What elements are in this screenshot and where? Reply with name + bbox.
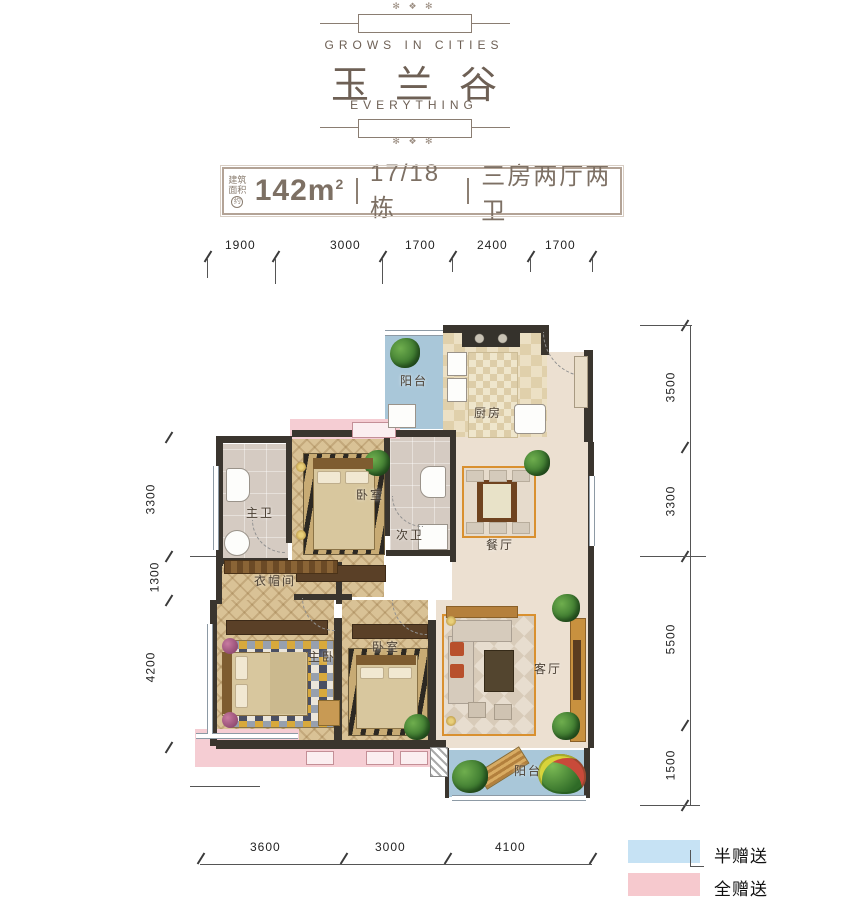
logo-rule-top-right	[468, 23, 510, 24]
dim-top-5: 1700	[545, 238, 576, 252]
room-label-bedroom-mid: 卧室	[356, 486, 384, 503]
flourish-bottom-icon: ✻ ❖ ✻	[354, 136, 474, 147]
pouf-icon	[222, 638, 238, 654]
dim-right-4: 1500	[663, 750, 677, 781]
plant-icon	[390, 338, 420, 368]
dimension-tick	[165, 594, 174, 606]
dim-left-3: 4200	[143, 652, 157, 683]
dimension-tick	[204, 250, 213, 262]
wall-segment	[386, 550, 456, 556]
fridge-icon	[514, 404, 546, 434]
info-divider	[356, 178, 358, 204]
dimension-line	[640, 325, 692, 326]
wall-segment	[216, 740, 446, 749]
dimension-tick	[340, 852, 349, 864]
dimension-tick	[681, 719, 690, 731]
dimension-line	[530, 258, 531, 272]
window-marker	[213, 466, 219, 550]
logo-rule-bottom-right	[468, 127, 510, 128]
dimension-tick	[165, 550, 174, 562]
nightstand-icon	[296, 530, 306, 540]
window-marker	[385, 330, 443, 336]
room-label-master-bath: 主卫	[246, 504, 274, 521]
logo-tagline-bottom: EVERYTHING	[264, 98, 564, 112]
dimension-line	[207, 258, 208, 278]
pillow	[360, 667, 384, 679]
dimension-tick	[589, 250, 598, 262]
logo-rule-bottom-left	[320, 127, 360, 128]
dimension-tick	[449, 250, 458, 262]
dim-bottom-2: 3000	[375, 840, 406, 854]
dining-chair	[489, 470, 507, 482]
dim-top-1: 1900	[225, 238, 256, 252]
area-prefix: 建筑 面积约	[224, 175, 251, 208]
info-divider	[467, 178, 469, 204]
dimension-line	[640, 805, 700, 806]
shoe-cabinet	[574, 356, 588, 408]
dimension-tick	[444, 852, 453, 864]
ac-unit-box	[366, 751, 394, 765]
sink-icon	[224, 530, 250, 556]
dimension-line	[275, 258, 276, 284]
nightstand-icon	[296, 462, 306, 472]
wall-segment	[216, 436, 292, 443]
dimension-tick	[527, 250, 536, 262]
toilet-icon	[420, 466, 446, 498]
window-marker	[452, 795, 586, 801]
bedroom-2-headboard	[356, 655, 416, 665]
dimension-tick	[165, 741, 174, 753]
dimension-line	[640, 556, 706, 557]
logo-rule-top-left	[320, 23, 360, 24]
room-label-second-bath: 次卫	[396, 526, 424, 543]
dim-top-3: 1700	[405, 238, 436, 252]
wall-segment	[450, 436, 456, 562]
kitchen-sink-icon	[447, 378, 467, 402]
room-label-cloakroom: 衣帽间	[254, 572, 296, 589]
tv-icon	[573, 640, 581, 700]
cushion	[450, 664, 464, 678]
bush-icon	[452, 760, 488, 793]
dining-chair	[512, 522, 530, 534]
coffee-table-icon	[484, 650, 514, 692]
master-headboard	[222, 652, 232, 714]
flourish-top-icon: ✻ ❖ ✻	[354, 1, 474, 12]
pillow	[345, 471, 369, 484]
armchair	[494, 704, 512, 720]
dim-bottom-3: 4100	[495, 840, 526, 854]
window-marker	[589, 476, 595, 546]
pillow	[235, 684, 248, 708]
wall-segment	[334, 618, 342, 746]
dimension-tick	[681, 441, 690, 453]
dining-chair	[489, 522, 507, 534]
room-label-living: 客厅	[534, 660, 562, 677]
logo-tagline-top: GROWS IN CITIES	[264, 38, 564, 52]
stove-icon	[462, 330, 520, 347]
dim-right-1: 3500	[663, 372, 677, 403]
dim-right-2: 3300	[663, 486, 677, 517]
dimension-tick	[165, 431, 174, 443]
plant-icon	[404, 714, 430, 740]
blanket	[270, 652, 306, 714]
lamp-icon	[446, 616, 456, 626]
dim-top-2: 3000	[330, 238, 361, 252]
dimension-line	[592, 258, 593, 272]
dim-left-1: 3300	[143, 484, 157, 515]
washing-machine-icon	[388, 404, 416, 428]
wall-segment	[216, 562, 222, 604]
dining-chair	[466, 470, 484, 482]
flowerbed-icon	[538, 754, 586, 794]
building-number: 17/18栋	[370, 160, 455, 223]
sofa-icon	[452, 620, 512, 642]
plant-icon	[524, 450, 550, 476]
room-label-bedroom-2: 卧室	[372, 638, 400, 655]
dim-bottom-1: 3600	[250, 840, 281, 854]
dimension-tick	[379, 250, 388, 262]
legend-label-full-gift: 全赠送	[714, 875, 768, 900]
flue-shaft	[430, 747, 448, 777]
dimension-line	[382, 258, 383, 284]
room-label-kitchen: 厨房	[474, 404, 502, 421]
dimension-line	[190, 786, 260, 787]
plant-icon	[552, 594, 580, 622]
dimension-line	[690, 866, 704, 867]
cushion	[450, 642, 464, 656]
dimension-line	[200, 864, 592, 865]
toilet-icon	[226, 468, 250, 502]
wall-segment	[286, 443, 292, 543]
lamp-icon	[446, 716, 456, 726]
window-marker	[207, 624, 213, 734]
console-table	[446, 606, 518, 618]
wall-segment	[386, 430, 456, 437]
ac-unit-box	[306, 751, 334, 765]
side-table	[318, 700, 340, 726]
dimension-tick	[197, 852, 206, 864]
logo-box-top	[358, 14, 472, 33]
dimension-tick	[589, 852, 598, 864]
dimension-line	[690, 325, 691, 806]
dimension-tick	[272, 250, 281, 262]
circled-yue: 约	[231, 196, 243, 208]
room-label-master-bedroom: 主卧	[308, 648, 336, 665]
area-value: 142m2	[255, 174, 345, 208]
pillow	[235, 656, 248, 680]
bedroom-mid-headboard	[313, 458, 373, 469]
legend-swatch-full-gift	[628, 873, 700, 896]
pillow	[317, 471, 341, 484]
kitchen-counter	[468, 352, 518, 438]
pillow	[388, 667, 412, 679]
ac-unit-box	[400, 751, 428, 765]
table-runner	[483, 484, 511, 518]
armchair	[468, 702, 486, 718]
unit-info-bar: 建筑 面积约 142m2 17/18栋 三房两厅两卫	[222, 167, 622, 215]
dining-chair	[466, 522, 484, 534]
pouf-icon	[222, 712, 238, 728]
room-label-dining: 餐厅	[486, 536, 514, 553]
room-label-balcony-bottom: 阳台	[514, 762, 542, 779]
dimension-line	[690, 850, 691, 866]
room-label-balcony-top: 阳台	[400, 372, 428, 389]
plant-icon	[552, 712, 580, 740]
dimension-line	[452, 258, 453, 272]
dim-left-2: 1300	[147, 562, 161, 593]
layout-type: 三房两厅两卫	[481, 156, 620, 226]
dim-top-4: 2400	[477, 238, 508, 252]
kitchen-sink-icon	[447, 352, 467, 376]
legend-label-half-gift: 半赠送	[714, 842, 768, 867]
dim-right-3: 5500	[663, 624, 677, 655]
